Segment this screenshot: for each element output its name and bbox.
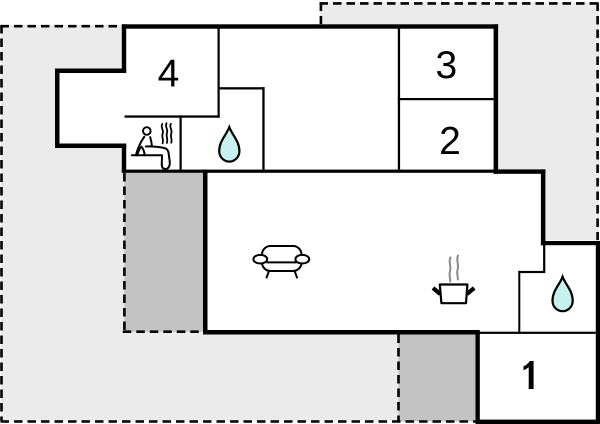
svg-text:2: 2	[439, 120, 461, 163]
svg-text:3: 3	[435, 44, 457, 87]
svg-text:4: 4	[158, 53, 180, 96]
